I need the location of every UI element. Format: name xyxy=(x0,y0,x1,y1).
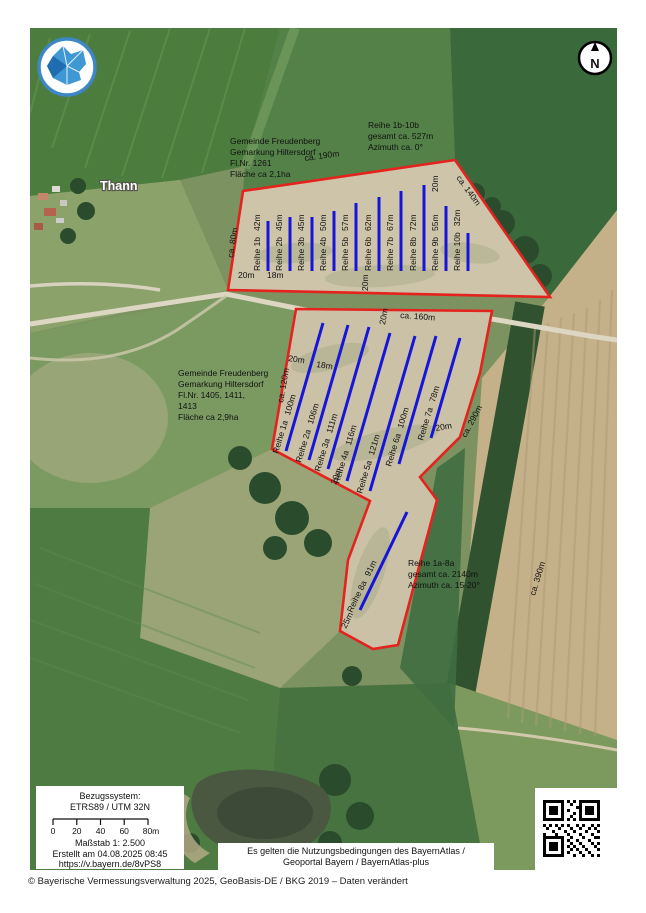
usage-line2: Geoportal Bayern / BayernAtlas-plus xyxy=(283,857,430,867)
usage-box: Es gelten die Nutzungsbedingungen des Ba… xyxy=(218,843,494,870)
row-label-5b: Reihe 5b57m xyxy=(340,214,350,271)
summary-a-line3: Azimuth ca. 15-20° xyxy=(408,580,480,590)
dim-18m: 18m xyxy=(267,270,284,280)
ref-system-value: ETRS89 / UTM 32N xyxy=(70,802,150,812)
row-label-9b: Reihe 9b55m xyxy=(430,214,440,271)
summary-b-line2: gesamt ca. 527m xyxy=(368,131,433,141)
info-a-line5: Fläche ca 2,9ha xyxy=(178,412,239,422)
north-arrow: N xyxy=(579,42,611,74)
aerial-map: Reihe 1b42m Reihe 2b45m Reihe 3b45m Reih… xyxy=(30,28,617,870)
map-canvas: Reihe 1b42m Reihe 2b45m Reihe 3b45m Reih… xyxy=(30,28,617,870)
bayernatlas-logo xyxy=(39,39,95,95)
tick-0: 0 xyxy=(51,826,56,836)
summary-a-line2: gesamt ca. 2140m xyxy=(408,569,478,579)
summary-b-line3: Azimuth ca. 0° xyxy=(368,142,423,152)
permalink-url: https://v.bayern.de/8vPS8 xyxy=(59,859,161,869)
dim-20m-mid: 20m xyxy=(360,274,370,291)
summary-b-line1: Reihe 1b-10b xyxy=(368,120,419,130)
usage-line1: Es gelten die Nutzungsbedingungen des Ba… xyxy=(247,846,465,856)
info-a-line3: Fl.Nr. 1405, 1411, xyxy=(178,390,245,400)
qr-code xyxy=(535,788,617,870)
row-label-1b: Reihe 1b42m xyxy=(252,214,262,271)
info-b-line3: Fl.Nr. 1261 xyxy=(230,158,272,168)
tick-80m: 80m xyxy=(143,826,160,836)
north-letter: N xyxy=(590,56,599,71)
row-label-8b: Reihe 8b72m xyxy=(408,214,418,271)
info-b-line4: Fläche ca 2,1ha xyxy=(230,169,291,179)
info-a-line4: 1413 xyxy=(178,401,197,411)
tick-60: 60 xyxy=(119,826,129,836)
ref-system-title: Bezugssystem: xyxy=(79,791,140,801)
map-export-page: Reihe 1b42m Reihe 2b45m Reihe 3b45m Reih… xyxy=(0,0,646,913)
created-text: Erstellt am 04.08.2025 08:45 xyxy=(52,849,167,859)
info-b-line1: Gemeinde Freudenberg xyxy=(230,136,321,146)
tick-20: 20 xyxy=(72,826,82,836)
row-label-4b: Reihe 4b50m xyxy=(318,214,328,271)
scale-box: Bezugssystem: ETRS89 / UTM 32N 0 20 40 6… xyxy=(36,786,184,869)
row-label-2b: Reihe 2b45m xyxy=(274,214,284,271)
scale-text: Maßstab 1: 2.500 xyxy=(75,838,145,848)
dim-20m: 20m xyxy=(238,270,255,280)
info-a-line2: Gemarkung Hiltersdorf xyxy=(178,379,264,389)
copyright-text: © Bayerische Vermessungsverwaltung 2025,… xyxy=(28,876,408,887)
place-label-thann: Thann xyxy=(100,179,138,193)
info-a-line1: Gemeinde Freudenberg xyxy=(178,368,269,378)
row-label-7b: Reihe 7b67m xyxy=(385,214,395,271)
row-label-10b: Reihe 10b32m xyxy=(452,210,462,271)
summary-a-line1: Reihe 1a-8a xyxy=(408,558,455,568)
row-label-3b: Reihe 3b45m xyxy=(296,214,306,271)
info-b-line2: Gemarkung Hiltersdorf xyxy=(230,147,316,157)
tick-40: 40 xyxy=(96,826,106,836)
dim-20m-top: 20m xyxy=(430,175,440,192)
row-label-6b: Reihe 6b62m xyxy=(363,214,373,271)
